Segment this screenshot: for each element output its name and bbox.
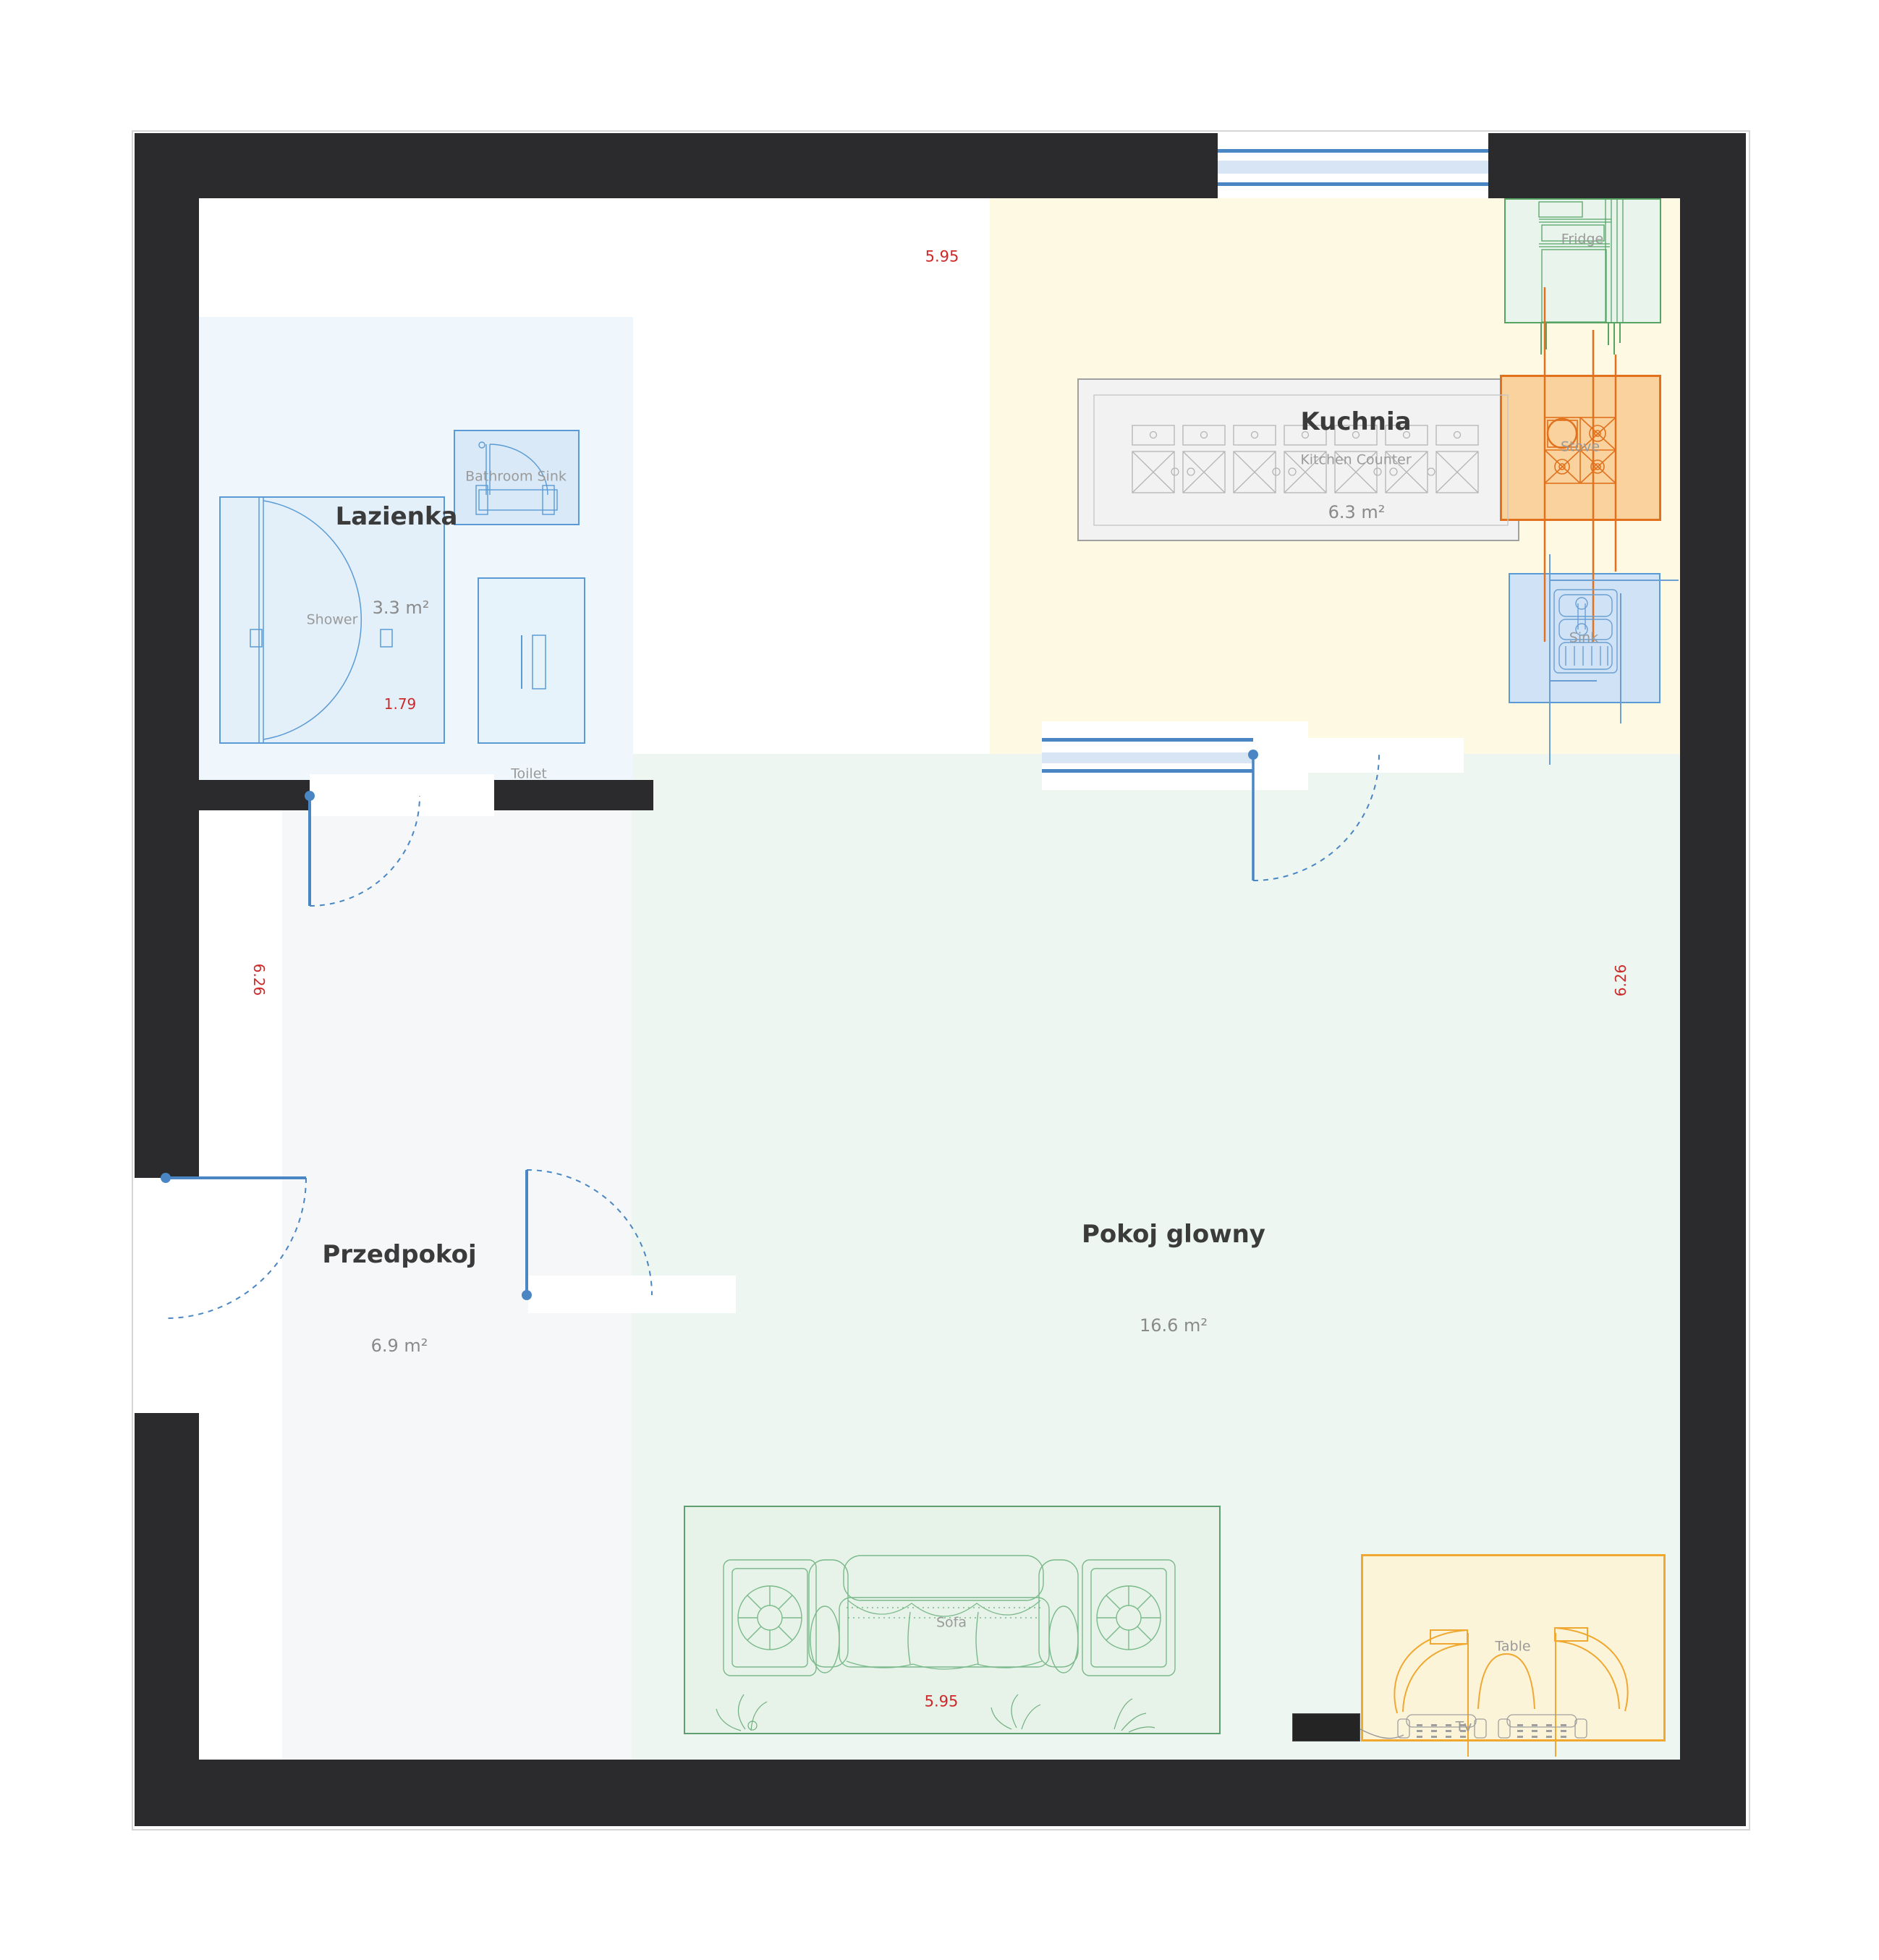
dimension-left-height: 6.26 [252,964,266,996]
sofa-label: Sofa [936,1616,967,1630]
toilet-label: Toilet [511,768,547,781]
table-label: Table [1495,1640,1530,1654]
wall-top-right [1488,133,1746,198]
kitchen-counter-box[interactable] [1077,378,1519,541]
stove-label: Stove [1561,441,1600,454]
opening-entrance [133,1178,200,1413]
bathroom-sink-label: Bathroom Sink [465,470,567,484]
wall-right [1680,198,1746,1760]
room-title-pokoj-glowny: Pokoj glowny [1082,1222,1265,1247]
room-area-kuchnia: 6.3 m² [1328,504,1386,521]
fridge-label: Fridge [1561,233,1603,247]
fridge-box[interactable] [1504,198,1661,323]
window-top-band [1218,161,1488,174]
opening-lazienka-door [310,774,494,816]
dimension-right-height: 6.26 [1613,964,1628,997]
kitchen-sink-label: Sink [1569,632,1598,645]
shower-label: Shower [307,614,358,627]
tv-label: Tv [1456,1721,1472,1734]
room-area-pokoj-glowny: 16.6 m² [1140,1317,1208,1334]
window-top[interactable] [1218,133,1488,198]
kitchen-counter-label: Kitchen Counter [1300,454,1411,467]
window-top-line-1 [1218,149,1488,153]
room-title-lazienka: Lazienka [336,504,458,529]
wall-bottom [135,1760,1746,1826]
room-title-przedpokoj: Przedpokoj [322,1242,476,1267]
wall-top-left [135,133,1218,198]
tv-unit[interactable] [1292,1713,1360,1741]
opening-przedpokoj-door [528,1276,736,1313]
room-title-kuchnia: Kuchnia [1300,410,1411,434]
toilet-box[interactable] [478,577,585,744]
wall-left-upper [135,198,199,1178]
dimension-sofa-width: 5.95 [925,1694,959,1710]
opening-kitchen-door [1253,738,1464,773]
dimension-top-width: 5.95 [925,250,959,265]
dimension-shower-width: 1.79 [384,697,417,711]
room-area-lazienka: 3.3 m² [373,599,430,616]
room-area-przedpokoj: 6.9 m² [371,1337,428,1354]
floor-plan-canvas: Lazienka 3.3 m² Shower Bathroom Sink Toi… [0,0,1879,1960]
window-top-line-2 [1218,182,1488,186]
